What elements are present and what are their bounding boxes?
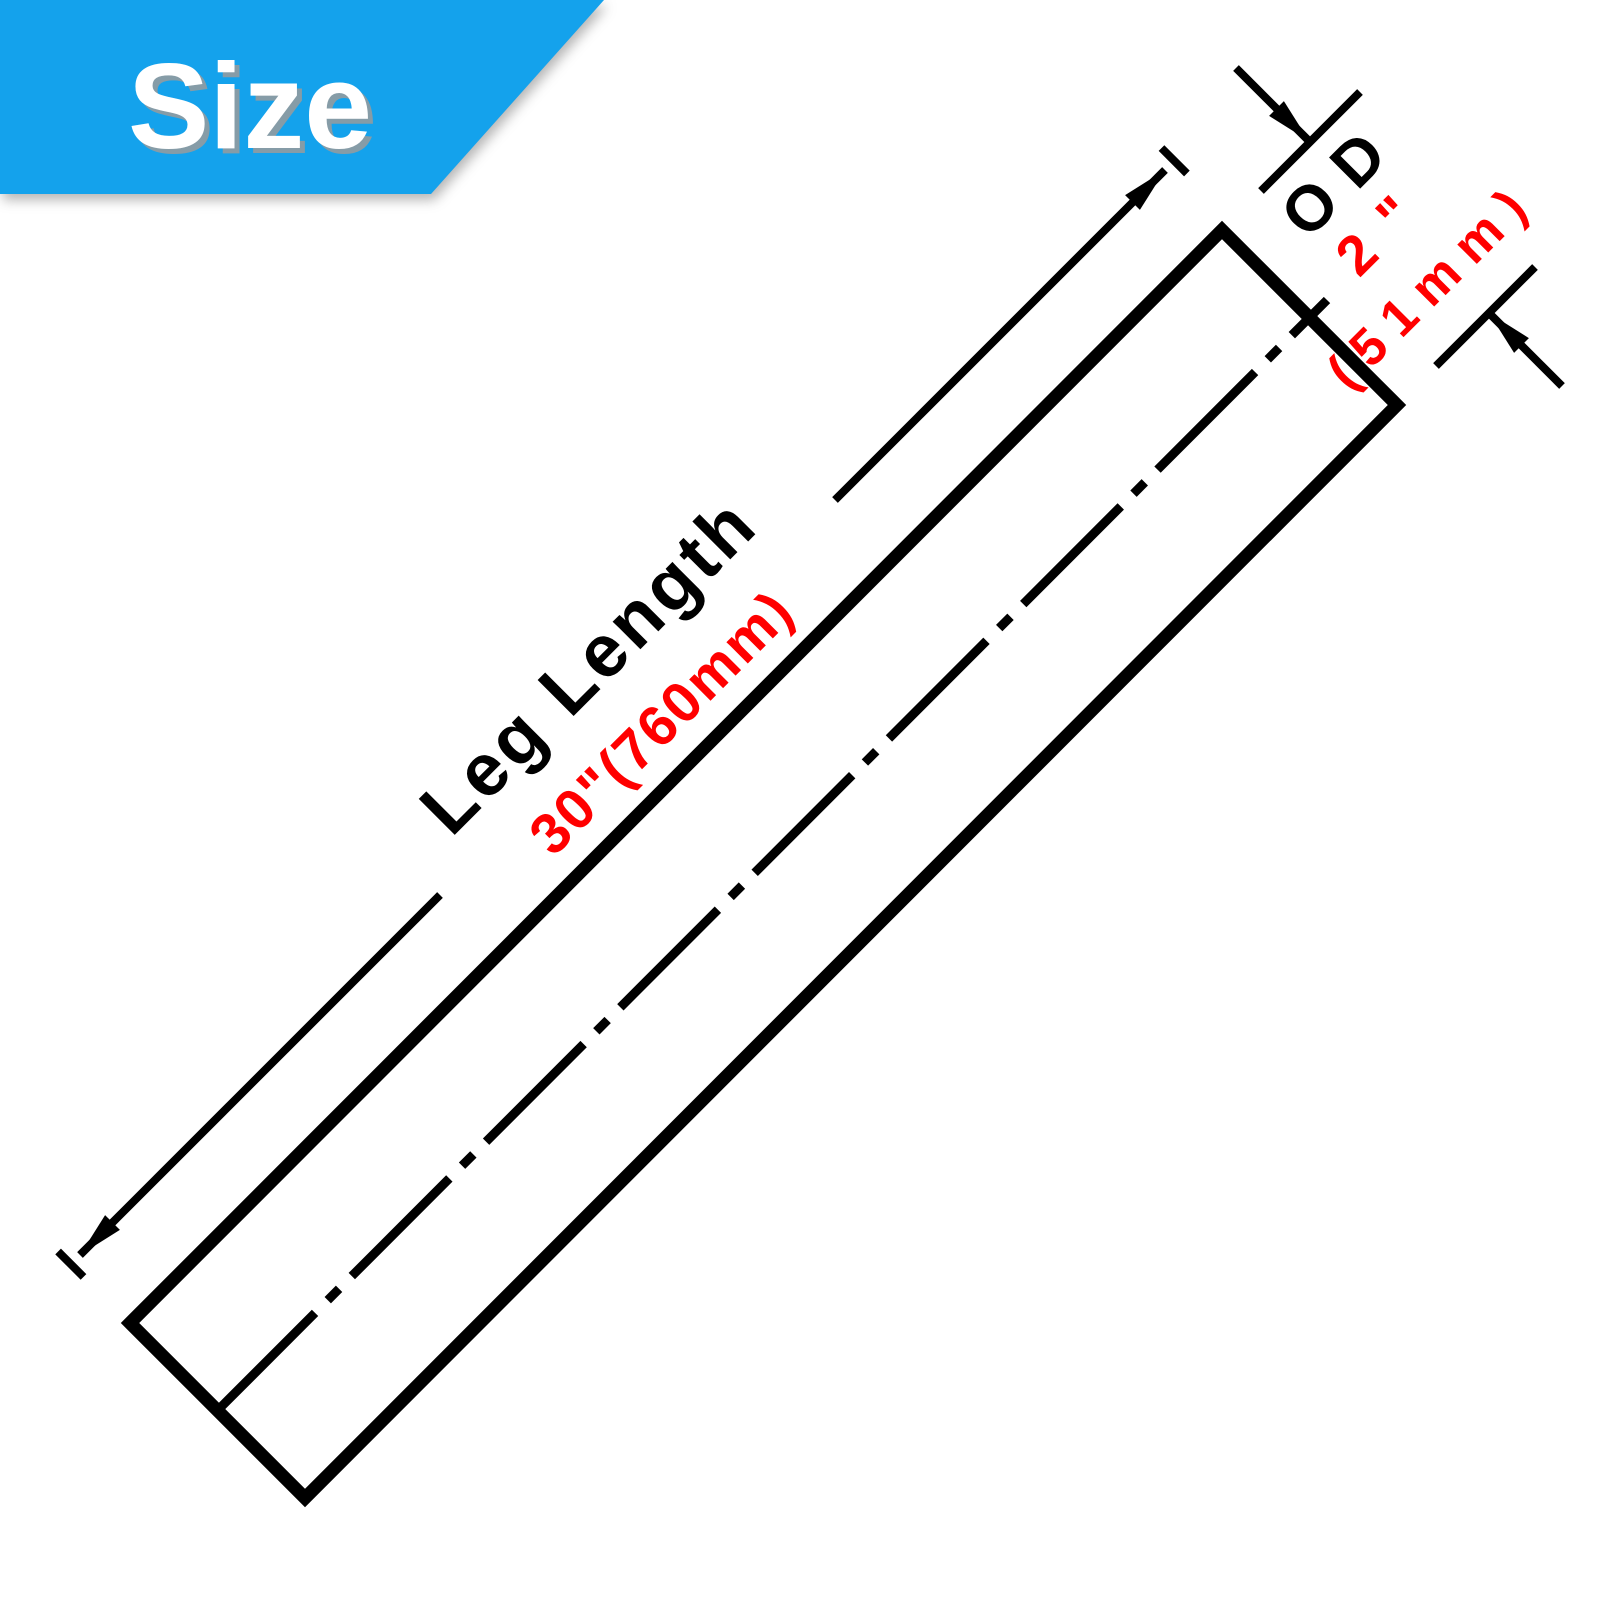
leg-length-tick-start (58, 1252, 83, 1277)
tube (130, 230, 1397, 1498)
leg-length-tick-end (1162, 148, 1187, 173)
size-banner: Size Size (0, 0, 604, 194)
size-banner-label: Size (128, 38, 372, 174)
product-size-diagram: Leg Length 30"(760mm) OD 2" (51mm) Size … (0, 0, 1600, 1600)
tube-centerline (218, 300, 1328, 1411)
size-diagram-svg: Leg Length 30"(760mm) OD 2" (51mm) Size … (0, 0, 1600, 1600)
